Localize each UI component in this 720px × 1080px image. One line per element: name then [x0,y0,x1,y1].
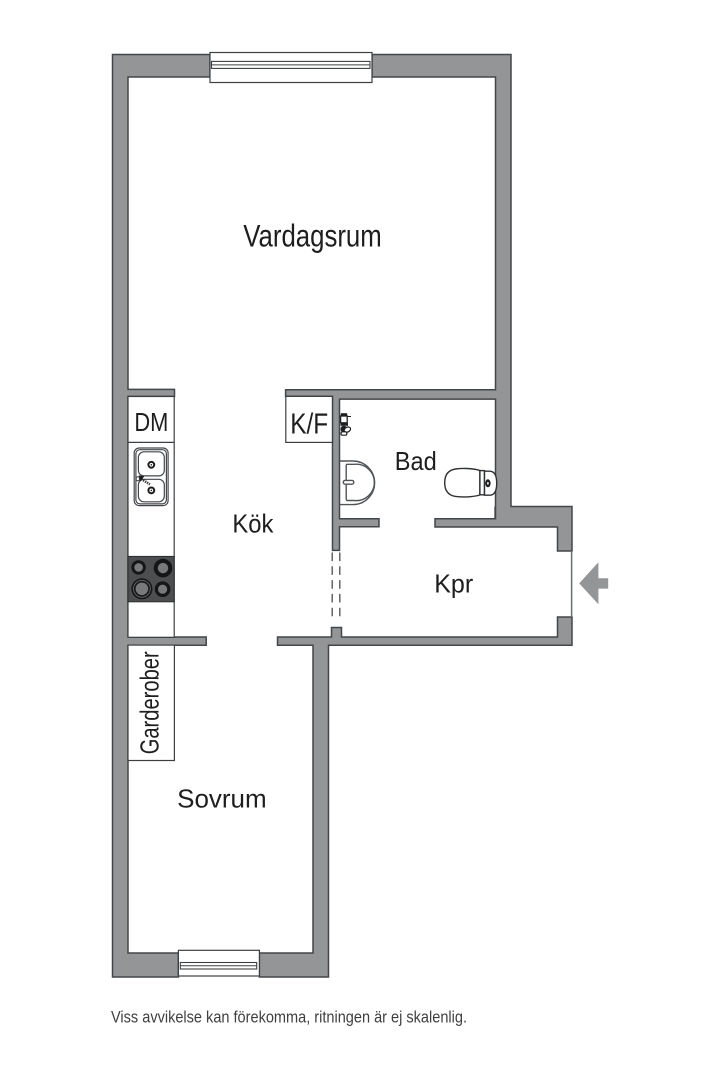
svg-text:Garderober: Garderober [134,651,164,754]
svg-text:Kpr: Kpr [434,569,473,599]
svg-text:Viss avvikelse kan förekomma,: Viss avvikelse kan förekomma, ritningen … [111,1007,467,1026]
svg-text:DM: DM [134,409,168,437]
svg-text:Sovrum: Sovrum [177,784,267,814]
svg-text:Bad: Bad [395,446,437,476]
svg-text:Kök: Kök [232,509,274,539]
svg-text:K/F: K/F [290,409,328,441]
svg-text:Vardagsrum: Vardagsrum [243,218,382,254]
